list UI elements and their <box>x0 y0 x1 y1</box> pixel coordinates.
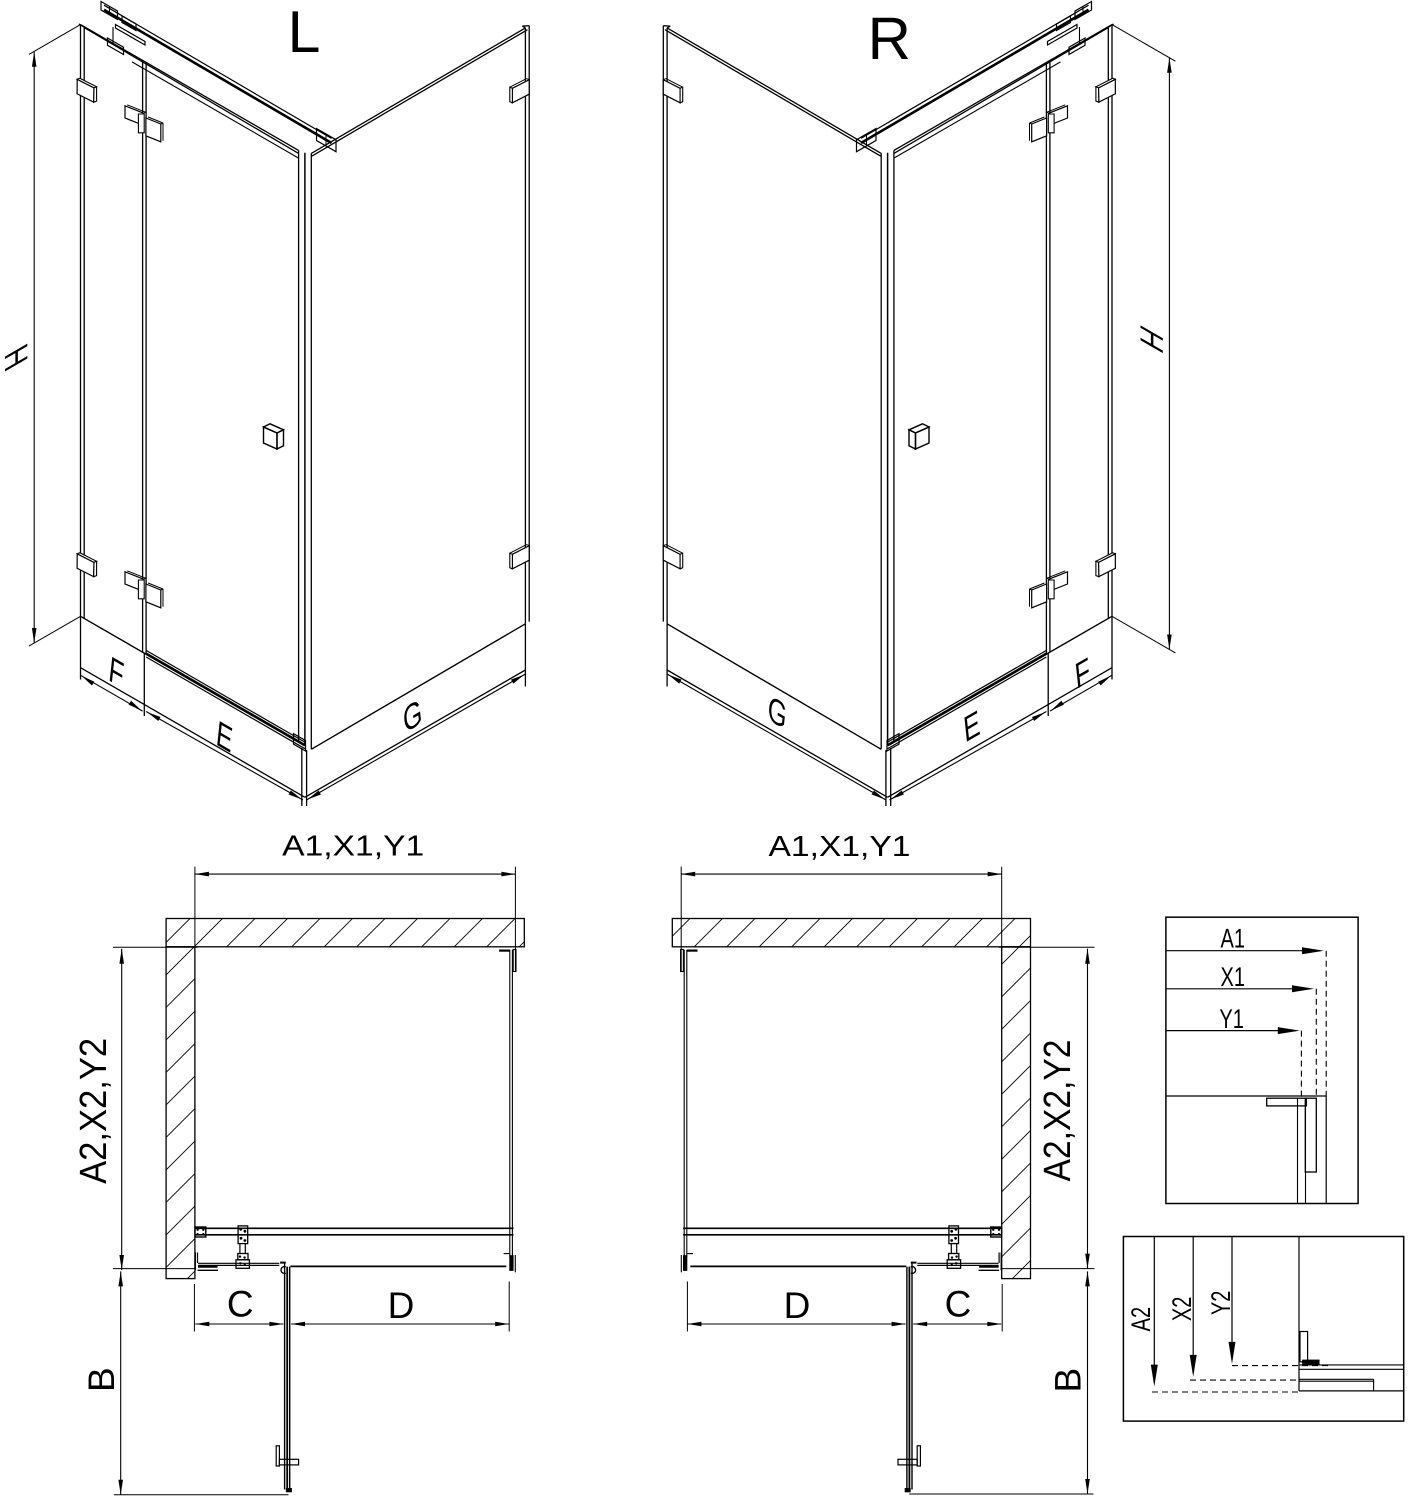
svg-text:X1: X1 <box>1221 962 1246 992</box>
svg-text:A2,X2,Y2: A2,X2,Y2 <box>73 1038 115 1184</box>
svg-text:C: C <box>945 1284 972 1325</box>
svg-text:Y2: Y2 <box>1206 1291 1236 1316</box>
svg-text:D: D <box>784 1285 811 1326</box>
svg-text:A1,X1,Y1: A1,X1,Y1 <box>282 830 424 862</box>
svg-text:R: R <box>868 5 911 72</box>
svg-text:X2: X2 <box>1167 1297 1197 1322</box>
svg-text:L: L <box>288 0 321 65</box>
svg-text:A2: A2 <box>1126 1307 1156 1332</box>
svg-text:D: D <box>388 1285 415 1326</box>
svg-text:Y1: Y1 <box>1219 1004 1244 1034</box>
svg-text:A1,X1,Y1: A1,X1,Y1 <box>769 831 911 863</box>
svg-text:A2,X2,Y2: A2,X2,Y2 <box>1037 1040 1079 1182</box>
svg-text:B: B <box>1048 1368 1089 1393</box>
svg-text:C: C <box>227 1284 254 1325</box>
svg-text:A1: A1 <box>1221 923 1246 953</box>
svg-text:B: B <box>81 1367 122 1392</box>
